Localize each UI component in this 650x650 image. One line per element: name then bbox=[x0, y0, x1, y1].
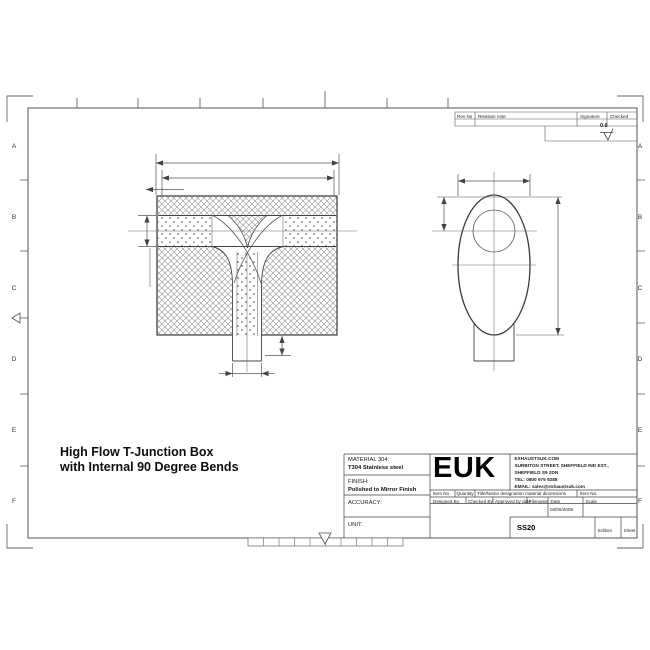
top-ticks bbox=[77, 91, 448, 108]
scale-header: Scale bbox=[586, 499, 598, 504]
parts-item-no-header: Item No bbox=[433, 491, 449, 496]
row-label-right-f: F bbox=[634, 498, 646, 505]
signature-header: Signature bbox=[580, 114, 600, 119]
front-view bbox=[128, 154, 357, 377]
drawing-title-line1: High Flow T-Junction Box bbox=[60, 445, 213, 459]
company-address-line: SURBITON STREET, SHEFFIELD IND EST., bbox=[515, 463, 609, 470]
sheet-label: Sheet bbox=[624, 528, 636, 533]
row-label-right-c: C bbox=[634, 285, 646, 292]
revision-note-header: Revision note bbox=[478, 114, 506, 119]
row-label-left-e: E bbox=[8, 427, 20, 434]
finish-label: FINISH: bbox=[348, 479, 369, 485]
company-logo: EUK bbox=[433, 452, 496, 484]
parts-item-no2-header: Item No. bbox=[580, 491, 597, 496]
right-ticks bbox=[637, 180, 645, 466]
row-label-left-f: F bbox=[8, 498, 20, 505]
surface-finish-symbol bbox=[600, 129, 613, 141]
accuracy-label: ACCURACY: bbox=[348, 500, 382, 506]
left-center-mark bbox=[12, 313, 20, 323]
parts-designation-header: Title/Name designation material dimensio… bbox=[477, 491, 566, 496]
drawing-canvas bbox=[0, 0, 650, 650]
rev-no-header: Rev No bbox=[457, 114, 472, 119]
designed-by-header: Designed By. bbox=[433, 499, 460, 504]
row-label-right-b: B bbox=[634, 214, 646, 221]
company-address-line: EXHAUSTSUK.COM bbox=[515, 456, 609, 463]
drawing-title-line2: with Internal 90 Degree Bends bbox=[60, 460, 239, 474]
finish-value: Polished to Mirror Finish bbox=[348, 487, 416, 493]
company-address-line: SHEFFIELD S9 2DN bbox=[515, 470, 609, 477]
material-value: T304 Stainless steel bbox=[348, 465, 403, 471]
part-number: SS20 bbox=[517, 524, 535, 532]
material-label: MATERIAL 304: bbox=[348, 457, 389, 463]
row-label-right-e: E bbox=[634, 427, 646, 434]
checked-header: Checked bbox=[610, 114, 628, 119]
parts-quantity-header: Quantity bbox=[457, 491, 474, 496]
left-ticks bbox=[20, 180, 28, 466]
side-view bbox=[432, 172, 564, 371]
approved-by-header: Approved by date bbox=[495, 499, 531, 504]
company-address-line: EMAIL: sales@exhaustsuk.com bbox=[515, 484, 609, 491]
date-value: 04/06/2009 bbox=[550, 507, 573, 512]
row-label-right-a: A bbox=[634, 143, 646, 150]
row-label-left-a: A bbox=[8, 143, 20, 150]
row-label-left-c: C bbox=[8, 285, 20, 292]
row-label-left-b: B bbox=[8, 214, 20, 221]
checked-by-header: Checked By bbox=[468, 499, 493, 504]
unit-label: UNIT: bbox=[348, 522, 363, 528]
row-label-left-d: D bbox=[8, 356, 20, 363]
edition-label: Edition bbox=[598, 528, 612, 533]
company-address-line: TEL: 0800 975 9288 bbox=[515, 477, 609, 484]
drawing-sheet: A B C D E F A B C D E F Rev No Revision … bbox=[0, 0, 650, 650]
filename-header: Filename bbox=[529, 499, 548, 504]
surface-finish-value: 0.6 bbox=[600, 123, 608, 129]
date-header: Date bbox=[551, 499, 561, 504]
company-address: EXHAUSTSUK.COM SURBITON STREET, SHEFFIEL… bbox=[515, 456, 609, 491]
row-label-right-d: D bbox=[634, 356, 646, 363]
